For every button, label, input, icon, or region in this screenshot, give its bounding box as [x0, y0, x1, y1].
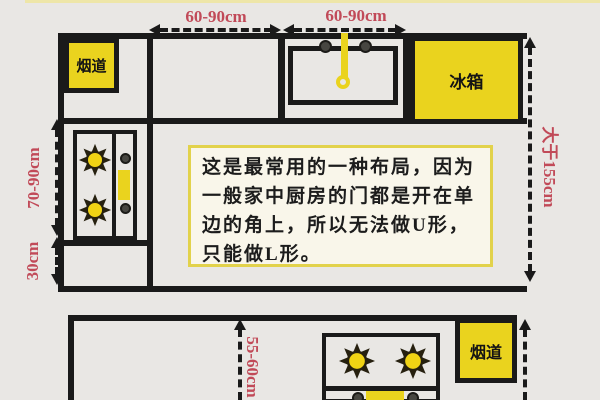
flue-box: 烟道 [64, 38, 119, 93]
dim-arrow-bottom-right [523, 329, 527, 400]
stove-knob-icon [352, 392, 364, 400]
stove-knob-icon [120, 153, 131, 164]
burner-icon [78, 193, 112, 227]
burner-icon [78, 143, 112, 177]
top-edge-strip [25, 0, 600, 3]
sink-section-divider [278, 33, 285, 124]
dim-label-bottom-depth: 55-60cm [243, 327, 261, 400]
dim-arrow-right [528, 47, 532, 272]
fridge-section-divider [403, 33, 410, 124]
dim-label-left-upper: 70-90cm [25, 128, 43, 228]
bottom-room-left-wall [68, 315, 74, 400]
burner-icon [338, 342, 376, 380]
dim-label-top-right: 60-90cm [306, 7, 406, 25]
note-line: 边的角上，所以无法做U形， [202, 211, 490, 240]
dim-arrow-left-upper [55, 129, 59, 226]
dim-label-left-lower: 30cm [24, 231, 42, 291]
dim-label-top-left: 60-90cm [166, 8, 266, 26]
dim-arrow-top-right [294, 28, 396, 32]
stove-panel-divider [112, 134, 116, 236]
stove-knob-icon [120, 203, 131, 214]
faucet-spout-icon [336, 75, 350, 89]
stove-knob-icon [407, 392, 419, 400]
sink-tap-knob-icon [359, 40, 372, 53]
kitchen-layout-diagram: 烟道 冰箱 这是最常用的一种布局，因为 一般家中厨房的门都是开在单 边的角上，所… [0, 0, 600, 400]
top-room-bottom-wall [58, 286, 527, 292]
flue-label: 烟道 [76, 55, 106, 76]
stove-panel-strip [366, 391, 404, 400]
fridge-box: 冰箱 [410, 36, 523, 124]
flue-label: 烟道 [470, 339, 502, 363]
note-line: 这是最常用的一种布局，因为 [202, 153, 490, 182]
faucet-icon [341, 33, 348, 77]
arrow-head-icon [51, 225, 63, 236]
dim-arrow-left-lower [55, 247, 59, 275]
arrow-head-icon [283, 24, 294, 36]
flue-box: 烟道 [455, 318, 517, 383]
stove-panel-strip [118, 170, 130, 200]
arrow-head-icon [149, 24, 160, 36]
left-counter-front-edge-line [147, 33, 153, 292]
dim-arrow-top-left [160, 28, 272, 32]
stove-section-divider [58, 240, 153, 246]
bottom-room-back-wall [68, 315, 517, 321]
note-line: 只能做L形。 [202, 240, 490, 269]
arrow-head-icon [51, 274, 63, 285]
dim-arrow-bottom-depth [238, 329, 242, 400]
sink-tap-knob-icon [319, 40, 332, 53]
burner-icon [394, 342, 432, 380]
dim-label-right: 大于155cm [540, 112, 558, 222]
note-box: 这是最常用的一种布局，因为 一般家中厨房的门都是开在单 边的角上，所以无法做U形… [188, 145, 493, 267]
arrow-head-icon [524, 271, 536, 282]
note-line: 一般家中厨房的门都是开在单 [202, 182, 490, 211]
arrow-head-icon [270, 24, 281, 36]
fridge-label: 冰箱 [450, 68, 484, 93]
arrow-head-icon [395, 24, 406, 36]
